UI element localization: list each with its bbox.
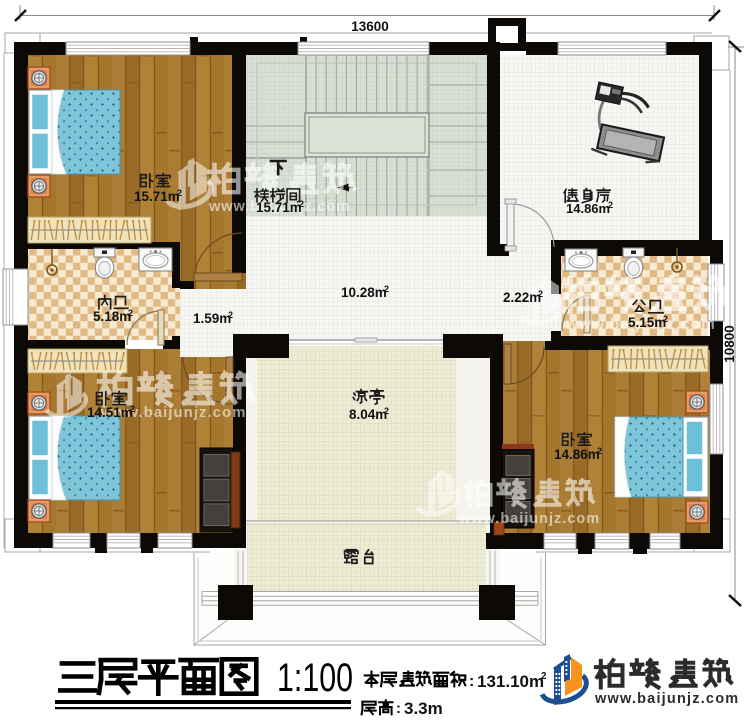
svg-text:14.86m: 14.86m <box>554 447 600 462</box>
svg-text:2: 2 <box>384 284 389 294</box>
svg-text:www.baijunjz.com: www.baijunjz.com <box>594 691 739 707</box>
svg-text:15.71m: 15.71m <box>256 200 302 215</box>
svg-text:1.59m: 1.59m <box>193 311 231 326</box>
svg-text:14.86m: 14.86m <box>566 201 610 216</box>
svg-text:2: 2 <box>228 310 233 320</box>
svg-text:131.10m: 131.10m <box>477 672 544 691</box>
svg-text:2: 2 <box>128 308 133 318</box>
svg-text:2: 2 <box>608 200 613 210</box>
svg-text:2.22m: 2.22m <box>503 290 541 305</box>
svg-text:5.15m: 5.15m <box>628 315 666 330</box>
svg-text:2: 2 <box>299 199 304 209</box>
svg-text:2: 2 <box>663 314 668 324</box>
svg-text:8.04m: 8.04m <box>349 407 387 422</box>
svg-text:2: 2 <box>384 406 389 416</box>
svg-text:5.18m: 5.18m <box>93 309 131 324</box>
svg-text::: : <box>469 673 474 690</box>
svg-text:2: 2 <box>597 446 602 456</box>
svg-text:1:100: 1:100 <box>277 656 353 700</box>
svg-text:2: 2 <box>538 289 543 299</box>
svg-text::: : <box>396 700 401 717</box>
svg-text:2: 2 <box>130 404 135 414</box>
svg-text:15.71m: 15.71m <box>134 189 180 204</box>
svg-text:10.28m: 10.28m <box>341 285 387 300</box>
svg-text:2: 2 <box>177 188 182 198</box>
svg-text:13600: 13600 <box>351 19 389 34</box>
svg-text:10800: 10800 <box>722 325 737 363</box>
svg-text:14.51m: 14.51m <box>87 405 133 420</box>
svg-text:2: 2 <box>541 671 547 682</box>
svg-text:3.3m: 3.3m <box>404 699 443 718</box>
svg-text:www.baijunjz.com: www.baijunjz.com <box>458 511 600 527</box>
